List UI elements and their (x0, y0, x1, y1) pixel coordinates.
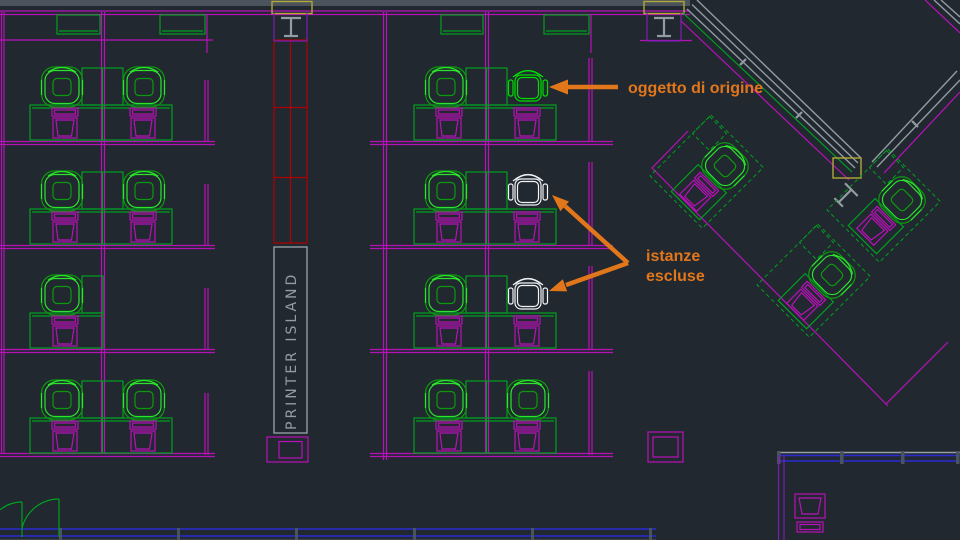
monitor-symbol (52, 421, 78, 451)
copier-symbol (795, 494, 825, 532)
monitor-symbol (514, 212, 540, 242)
monitor-symbol (514, 421, 540, 451)
monitor-symbol (52, 108, 78, 138)
printer-island: PRINTER ISLAND (267, 40, 308, 462)
chair-highlighted[interactable] (124, 171, 165, 211)
chair-highlighted[interactable] (124, 380, 165, 420)
diagonal-workstation (827, 149, 940, 262)
chair-origin[interactable] (509, 71, 548, 102)
phone-icon (492, 86, 503, 98)
door-swing-icon (0, 499, 59, 537)
ibeam-icon (654, 18, 674, 36)
corner-column (832, 158, 861, 209)
monitor-symbol (514, 108, 540, 138)
ibeam-icon (281, 18, 301, 36)
printer-island-label: PRINTER ISLAND (284, 272, 300, 430)
chair-highlighted[interactable] (426, 380, 467, 420)
phone-icon (87, 294, 98, 306)
top-wall (0, 0, 692, 53)
chair-highlighted[interactable] (42, 67, 83, 107)
diagonal-workstations-layer (650, 115, 940, 337)
monitor-symbol (436, 421, 462, 451)
phone-icon (492, 190, 503, 202)
excluded-instances-label-line1: istanze (646, 248, 700, 265)
bottom-right-room (648, 432, 960, 540)
chair-highlighted[interactable] (124, 67, 165, 107)
phone-icon (805, 240, 821, 256)
chair-highlighted[interactable] (42, 380, 83, 420)
cad-viewport: PRINTER ISLAND (0, 0, 960, 540)
monitor-symbol (436, 108, 462, 138)
phone-icon (87, 86, 98, 98)
phone-icon (698, 131, 714, 147)
chair-highlighted[interactable] (508, 380, 549, 420)
phone-icon (492, 294, 503, 306)
phone-icon (87, 399, 98, 411)
chair-excluded[interactable] (509, 175, 548, 206)
arrow-origin (549, 80, 618, 95)
origin-object-label: oggetto di origine (628, 80, 763, 97)
phone-icon (492, 399, 503, 411)
monitor-symbol (130, 212, 156, 242)
monitor-symbol (436, 212, 462, 242)
phone-icon (108, 190, 119, 202)
bottom-wall (0, 499, 656, 540)
diagonal-workstation (757, 224, 870, 337)
chair-highlighted[interactable] (426, 275, 467, 315)
overhead-cabinets (57, 15, 589, 34)
monitor-symbol (52, 212, 78, 242)
chair-excluded[interactable] (509, 279, 548, 310)
phone-icon (471, 190, 482, 202)
monitor-symbol (52, 316, 78, 346)
monitor-symbol (436, 316, 462, 346)
phone-icon (108, 86, 119, 98)
structural-column-1 (272, 2, 312, 42)
phone-icon (471, 294, 482, 306)
structural-column-2 (644, 2, 684, 42)
annotations: oggetto di origine istanze escluse (549, 80, 763, 292)
phone-icon (471, 86, 482, 98)
ibeam-icon (832, 183, 857, 208)
cad-drawing-canvas[interactable]: PRINTER ISLAND (0, 0, 960, 540)
phone-icon (108, 399, 119, 411)
monitor-symbol (130, 108, 156, 138)
phone-icon (471, 399, 482, 411)
monitor-symbol (514, 316, 540, 346)
chair-highlighted[interactable] (42, 171, 83, 211)
monitor-symbol (130, 421, 156, 451)
diagonal-workstation (650, 115, 763, 228)
chair-highlighted[interactable] (42, 275, 83, 315)
excluded-instances-label-line2: escluse (646, 268, 705, 285)
arrow-excluded-top (552, 195, 628, 263)
chair-highlighted[interactable] (426, 171, 467, 211)
floor-box-symbol (648, 432, 683, 462)
chair-highlighted[interactable] (426, 67, 467, 107)
phone-icon (87, 190, 98, 202)
